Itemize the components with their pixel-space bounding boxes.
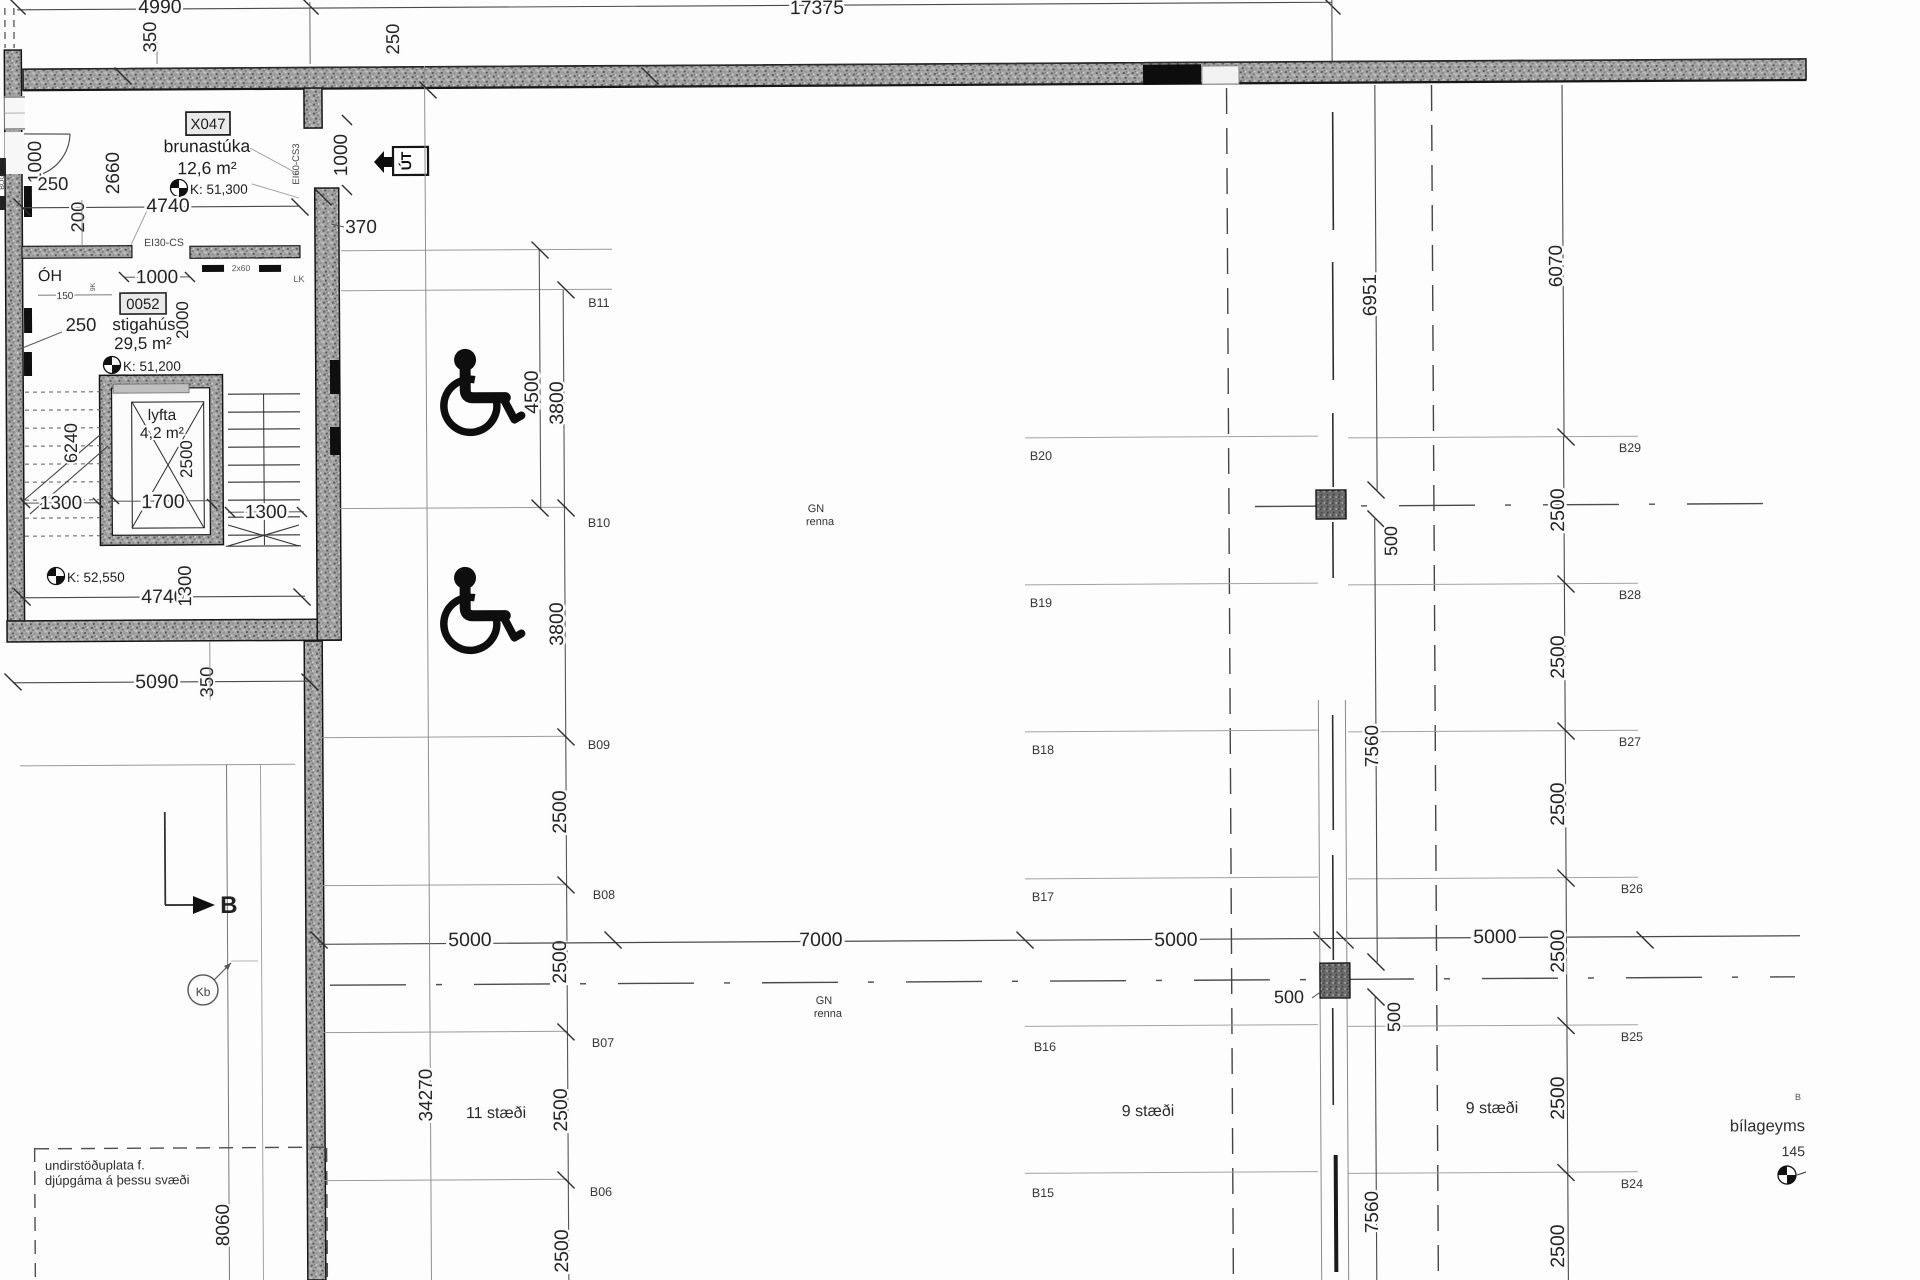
svg-text:6240: 6240 [61, 423, 81, 463]
svg-text:370: 370 [345, 217, 377, 238]
svg-text:29,5 m²: 29,5 m² [114, 334, 172, 353]
svg-text:5000: 5000 [1473, 926, 1517, 948]
svg-text:500: 500 [1274, 987, 1304, 1007]
svg-text:LK: LK [293, 274, 304, 284]
svg-text:undirstöðuplata f.: undirstöðuplata f. [45, 1157, 145, 1173]
svg-text:1700: 1700 [141, 491, 185, 513]
svg-text:GN: GN [808, 503, 825, 515]
svg-text:lyfta: lyfta [148, 407, 177, 424]
svg-text:B17: B17 [1032, 890, 1054, 904]
svg-text:9 stæði: 9 stæði [1466, 1100, 1519, 1117]
svg-text:4740: 4740 [146, 195, 190, 217]
svg-text:B07: B07 [592, 1036, 614, 1050]
svg-text:K: 51,200: K: 51,200 [123, 359, 181, 374]
svg-text:2500: 2500 [1547, 488, 1569, 532]
svg-text:3800: 3800 [546, 602, 568, 646]
svg-text:9 stæði: 9 stæði [1122, 1103, 1175, 1120]
svg-text:X047: X047 [190, 116, 225, 133]
svg-text:2500: 2500 [1547, 1224, 1569, 1268]
svg-text:2500: 2500 [549, 940, 571, 984]
svg-text:1000: 1000 [331, 134, 352, 176]
svg-text:250: 250 [37, 173, 68, 194]
svg-text:B24: B24 [1621, 1177, 1643, 1191]
svg-text:B: B [220, 892, 237, 919]
svg-text:brunastúka: brunastúka [164, 136, 251, 156]
svg-text:K: 51,300: K: 51,300 [190, 182, 248, 197]
svg-text:0052: 0052 [126, 296, 159, 313]
svg-text:250: 250 [65, 314, 96, 335]
svg-text:B20: B20 [1030, 449, 1052, 463]
svg-text:350: 350 [196, 667, 217, 698]
svg-text:5000: 5000 [1154, 929, 1198, 951]
svg-text:B28: B28 [1619, 588, 1641, 602]
svg-text:renna: renna [806, 516, 835, 528]
svg-text:6951: 6951 [1360, 274, 1381, 316]
svg-text:2500: 2500 [177, 440, 196, 478]
svg-text:2500: 2500 [550, 1088, 572, 1132]
svg-text:ÓH: ÓH [38, 266, 62, 285]
svg-text:150: 150 [57, 291, 74, 302]
svg-text:9K: 9K [90, 282, 97, 291]
svg-text:ÚT: ÚT [397, 151, 414, 170]
svg-text:B08: B08 [593, 888, 615, 902]
svg-text:34270: 34270 [416, 1069, 437, 1122]
svg-text:B25: B25 [1621, 1030, 1643, 1044]
svg-text:6070: 6070 [1546, 245, 1567, 287]
svg-text:K: 52,550: K: 52,550 [67, 570, 125, 585]
svg-text:djúpgáma á þessu svæði: djúpgáma á þessu svæði [45, 1172, 190, 1188]
svg-text:B26: B26 [1621, 882, 1643, 896]
svg-text:B27: B27 [1619, 735, 1641, 749]
svg-text:GN: GN [816, 995, 833, 1007]
svg-text:1300: 1300 [40, 493, 82, 514]
svg-text:2500: 2500 [1547, 782, 1569, 826]
svg-text:2500: 2500 [1547, 929, 1569, 973]
svg-text:17375: 17375 [790, 0, 845, 19]
svg-text:5090: 5090 [135, 671, 179, 693]
svg-text:500: 500 [1384, 1002, 1404, 1032]
svg-text:B11: B11 [588, 296, 609, 310]
svg-text:350: 350 [139, 22, 160, 53]
svg-text:stigahús: stigahús [112, 315, 175, 334]
svg-text:8060: 8060 [213, 1204, 234, 1246]
svg-text:B09: B09 [588, 738, 610, 752]
svg-text:7000: 7000 [799, 929, 843, 951]
svg-text:1300: 1300 [245, 502, 287, 523]
svg-text:7560: 7560 [1362, 1191, 1383, 1233]
svg-text:5000: 5000 [448, 929, 492, 951]
svg-text:renna: renna [814, 1008, 843, 1020]
svg-text:B18: B18 [1032, 743, 1054, 757]
svg-text:4990: 4990 [138, 0, 182, 18]
svg-text:B: B [1795, 1092, 1801, 1102]
svg-text:B06: B06 [590, 1185, 612, 1199]
svg-text:EI60-CS3: EI60-CS3 [291, 143, 302, 184]
svg-text:2660: 2660 [103, 152, 124, 194]
svg-text:EI30-CS: EI30-CS [144, 237, 184, 249]
svg-text:B15: B15 [1032, 1186, 1054, 1200]
svg-text:1000: 1000 [136, 267, 178, 288]
svg-text:11 stæði: 11 stæði [466, 1105, 526, 1122]
svg-text:2000: 2000 [173, 301, 192, 339]
svg-text:2500: 2500 [1547, 1076, 1569, 1120]
svg-text:2500: 2500 [1547, 635, 1569, 679]
svg-text:200: 200 [67, 202, 88, 233]
svg-text:4,2 m²: 4,2 m² [140, 425, 184, 442]
svg-text:B29: B29 [1619, 441, 1641, 455]
svg-text:Kb: Kb [196, 985, 211, 999]
svg-text:2x60: 2x60 [232, 263, 251, 273]
svg-text:4500: 4500 [521, 370, 543, 414]
svg-text:500: 500 [1381, 526, 1401, 556]
svg-text:3800: 3800 [546, 381, 568, 425]
svg-text:145: 145 [1782, 1143, 1806, 1159]
svg-text:BOG: BOG [0, 174, 6, 190]
svg-text:B16: B16 [1034, 1040, 1056, 1054]
svg-text:2500: 2500 [549, 790, 571, 834]
svg-text:2500: 2500 [551, 1229, 573, 1273]
svg-text:7560: 7560 [1362, 725, 1383, 767]
svg-text:1300: 1300 [174, 565, 195, 606]
svg-text:bílageyms: bílageyms [1730, 1117, 1805, 1135]
svg-text:250: 250 [382, 24, 403, 55]
svg-text:12,6 m²: 12,6 m² [177, 158, 237, 178]
svg-text:B19: B19 [1030, 596, 1052, 610]
svg-text:B10: B10 [588, 516, 610, 530]
